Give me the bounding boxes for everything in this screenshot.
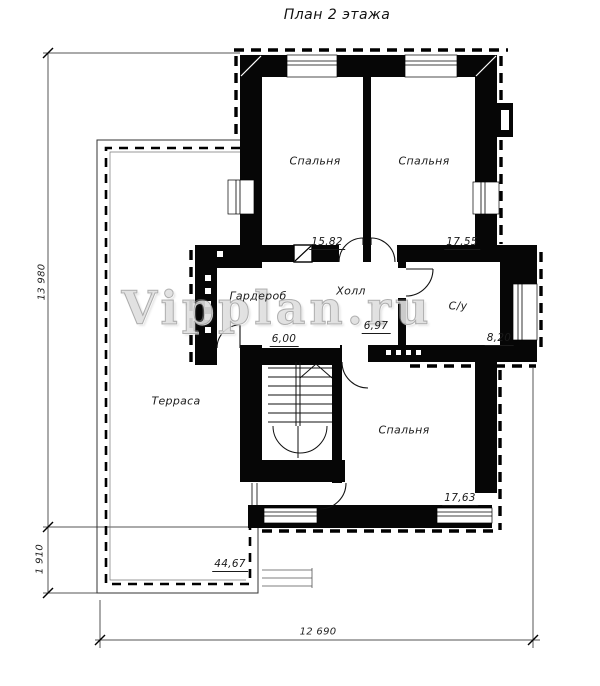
room-label-wardrobe: Гардероб: [229, 290, 286, 303]
room-label-terrace: Терраса: [151, 395, 200, 408]
window-bottom-left: [264, 508, 317, 523]
window-left: [228, 180, 254, 214]
window-bottom-right: [437, 508, 492, 523]
window-top-right: [405, 55, 457, 77]
stair-curve: [273, 426, 327, 453]
room-area-bathroom: 8,20: [485, 332, 514, 346]
dimension-left-total: 13 980: [37, 264, 48, 301]
room-label-hall: Холл: [336, 285, 366, 298]
room-area-bedroom-bottom: 17,63: [442, 492, 478, 506]
door-bedroom-bottom: [342, 362, 368, 388]
chimney-flue: [501, 110, 509, 130]
room-area-bedroom-top-right: 17,55: [444, 236, 480, 250]
room-label-bathroom: С/у: [449, 300, 468, 313]
door-stub: [363, 245, 371, 262]
window-bathroom: [513, 284, 537, 340]
room-area-wardrobe: 6,00: [270, 333, 299, 347]
room-label-bedroom-top-left: Спальня: [289, 155, 340, 168]
window-top-left: [287, 55, 337, 77]
terrace-steps: [262, 568, 312, 588]
plan-title: План 2 этажа: [284, 7, 391, 23]
room-area-hall: 6,97: [362, 320, 391, 334]
room-area-bedroom-top-left: 15,82: [309, 236, 345, 250]
room-label-bedroom-bottom: Спальня: [378, 424, 429, 437]
staircase: [268, 362, 332, 458]
room-area-terrace: 44,67: [212, 558, 248, 572]
window-right: [473, 182, 499, 214]
dimension-left-lower: 1 910: [35, 544, 46, 574]
room-label-bedroom-top-right: Спальня: [398, 155, 449, 168]
dimension-bottom-total: 12 690: [300, 627, 337, 638]
floor-plan-page: Vipplan.ru План 2 этажа Спальня 15,82 Сп…: [0, 0, 600, 686]
stair-direction-arrow: [300, 364, 332, 378]
